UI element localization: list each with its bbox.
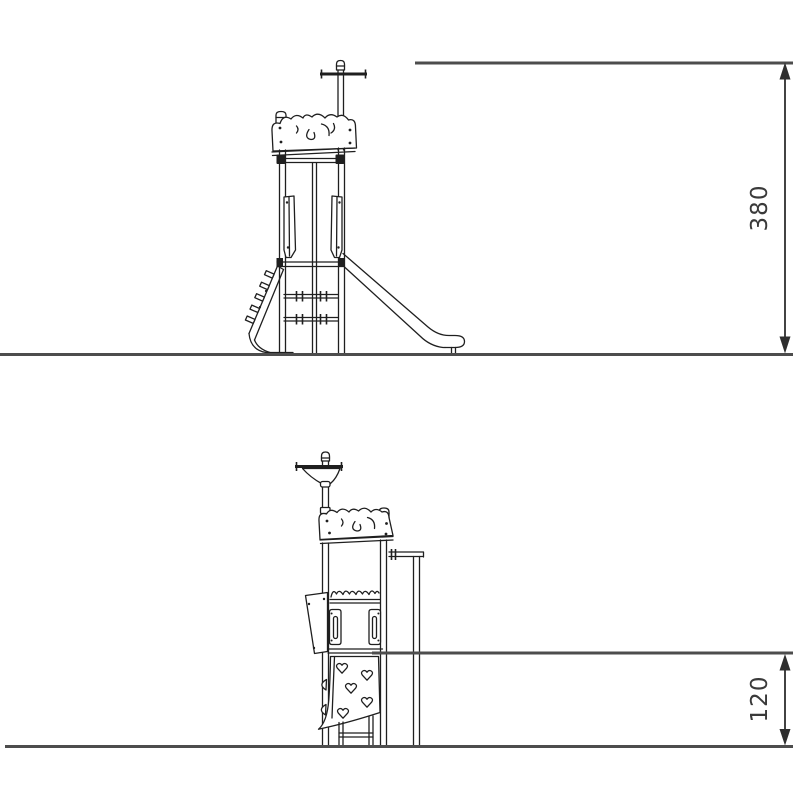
dimension-120: 120 xyxy=(372,653,793,746)
crown-panel xyxy=(272,112,357,152)
wavy-panel-edge xyxy=(331,591,379,597)
platform-deck xyxy=(277,258,346,267)
front-elevation-view: 120 xyxy=(5,452,793,747)
dimension-120-label: 120 xyxy=(747,676,773,723)
dimension-380: 380 xyxy=(415,63,793,354)
technical-drawing-page: 380 xyxy=(0,0,800,800)
heart-climbing-wall xyxy=(319,657,381,730)
slide xyxy=(343,254,465,355)
opening-top-rail xyxy=(330,600,380,604)
elevation-drawing-canvas: 380 xyxy=(0,0,800,800)
crown-panel-front xyxy=(319,508,393,540)
slide-end-view xyxy=(389,549,424,746)
handle-brackets xyxy=(330,610,381,645)
side-elevation-view: 380 xyxy=(0,61,793,355)
flag-pole-front xyxy=(295,452,343,514)
dimension-380-label: 380 xyxy=(747,185,773,232)
ladder-rungs xyxy=(284,291,338,325)
tilted-side-panel xyxy=(306,593,328,654)
